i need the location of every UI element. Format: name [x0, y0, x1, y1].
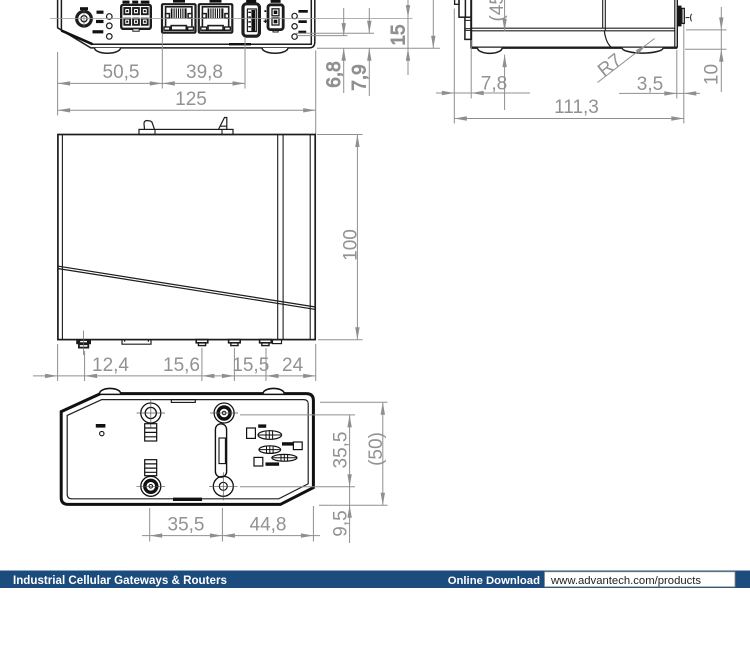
svg-text:7,9: 7,9 [350, 64, 371, 90]
svg-text:6,8: 6,8 [324, 61, 345, 87]
svg-text:15,5: 15,5 [232, 355, 269, 376]
svg-text:(50): (50) [366, 432, 387, 466]
svg-text:15,6: 15,6 [163, 355, 200, 376]
svg-text:9,5: 9,5 [330, 510, 351, 536]
svg-text:15: 15 [389, 24, 410, 45]
svg-text:24: 24 [282, 355, 304, 376]
svg-text:44,8: 44,8 [250, 515, 287, 536]
svg-text:35,5: 35,5 [168, 515, 205, 536]
svg-text:12,4: 12,4 [92, 355, 129, 376]
svg-text:50,5: 50,5 [103, 62, 140, 83]
svg-text:125: 125 [175, 89, 207, 110]
svg-text:(45: (45 [487, 0, 508, 22]
svg-text:7,8: 7,8 [481, 74, 507, 95]
svg-text:100: 100 [341, 229, 362, 261]
svg-text:R7: R7 [594, 50, 626, 81]
svg-text:www.advantech.com/products: www.advantech.com/products [550, 575, 701, 587]
svg-text:10: 10 [702, 64, 723, 85]
svg-text:39,8: 39,8 [186, 62, 223, 83]
svg-text:35,5: 35,5 [331, 432, 352, 469]
svg-text:Online Download: Online Download [448, 575, 540, 587]
svg-text:Industrial Cellular Gateways &: Industrial Cellular Gateways & Routers [13, 574, 227, 587]
svg-text:111,3: 111,3 [554, 97, 599, 118]
svg-text:3,5: 3,5 [637, 74, 663, 95]
